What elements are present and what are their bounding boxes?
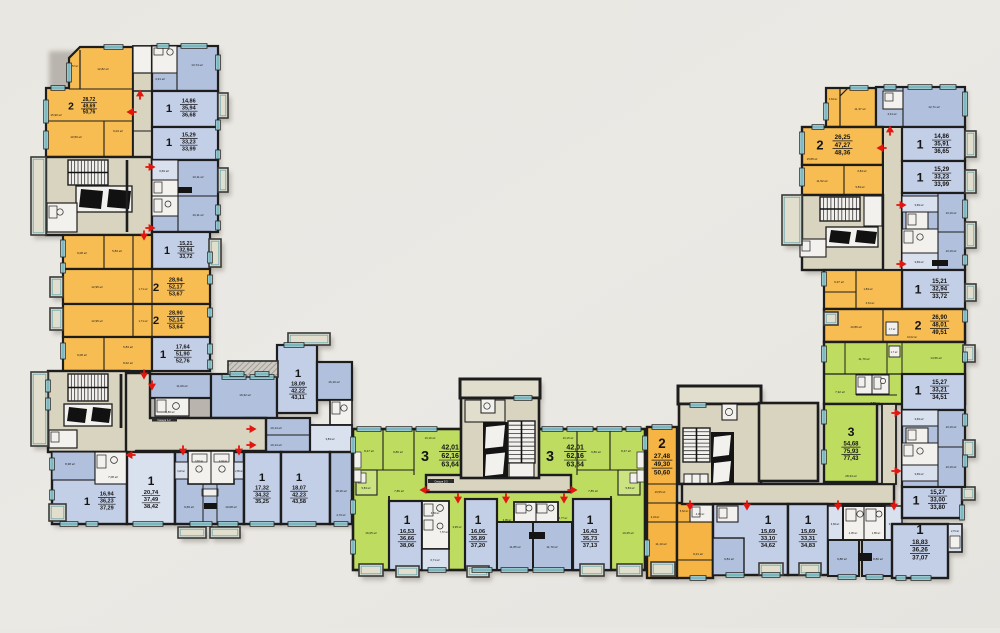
svg-text:10,14 м²: 10,14 м² (270, 426, 281, 430)
svg-text:3,69 м²: 3,69 м² (914, 417, 923, 421)
svg-text:33,00: 33,00 (930, 498, 946, 504)
svg-text:2,70 м²: 2,70 м² (336, 513, 345, 517)
svg-text:28,72: 28,72 (83, 97, 96, 103)
svg-text:16,06: 16,06 (471, 529, 485, 535)
svg-text:51,90: 51,90 (176, 352, 190, 358)
svg-text:27,48: 27,48 (654, 453, 671, 460)
svg-text:3,77 м²: 3,77 м² (559, 516, 568, 520)
svg-text:3,63 м²: 3,63 м² (829, 97, 838, 101)
svg-text:52,76: 52,76 (176, 358, 190, 364)
svg-text:49,30: 49,30 (654, 461, 671, 468)
svg-text:34,62: 34,62 (761, 543, 775, 549)
svg-text:Секция 2-3: Секция 2-3 (434, 479, 448, 483)
svg-text:35,94: 35,94 (182, 106, 197, 112)
svg-text:2: 2 (816, 138, 823, 153)
svg-text:37,13: 37,13 (583, 543, 597, 549)
svg-text:47,27: 47,27 (835, 142, 851, 149)
svg-text:2: 2 (658, 436, 665, 451)
svg-text:10,19 м²: 10,19 м² (946, 249, 957, 253)
svg-text:33,10: 33,10 (761, 536, 775, 542)
svg-text:10,50 м²: 10,50 м² (70, 135, 81, 139)
svg-text:3,69 м²: 3,69 м² (914, 203, 923, 207)
svg-text:3,69 м²: 3,69 м² (914, 472, 923, 476)
svg-text:3,69 м²: 3,69 м² (159, 169, 169, 173)
svg-text:16,94: 16,94 (100, 492, 115, 498)
svg-text:18,09: 18,09 (291, 382, 305, 388)
svg-text:33,31: 33,31 (801, 536, 816, 542)
svg-text:42,01: 42,01 (566, 444, 584, 451)
svg-text:5,83 м²: 5,83 м² (361, 486, 370, 490)
svg-text:7,32 м²: 7,32 м² (835, 390, 845, 394)
svg-text:35,91: 35,91 (934, 142, 950, 148)
svg-text:2: 2 (68, 102, 74, 113)
svg-text:35,25: 35,25 (255, 499, 269, 505)
svg-text:0,71 м²: 0,71 м² (430, 558, 439, 562)
svg-text:5,83 м²: 5,83 м² (112, 249, 122, 253)
svg-text:8,38 м²: 8,38 м² (65, 462, 75, 466)
svg-text:2,43 м²: 2,43 м² (651, 515, 660, 519)
svg-text:63,64: 63,64 (566, 462, 584, 469)
svg-text:33,21: 33,21 (932, 388, 948, 394)
svg-text:1: 1 (166, 103, 172, 115)
svg-text:33,99: 33,99 (934, 182, 950, 188)
svg-text:53,67: 53,67 (169, 291, 183, 297)
svg-text:1: 1 (915, 282, 922, 296)
svg-text:33,72: 33,72 (932, 294, 948, 300)
svg-text:16,15 м²: 16,15 м² (563, 436, 574, 440)
svg-text:1: 1 (166, 137, 172, 149)
svg-text:10,19 м²: 10,19 м² (946, 425, 957, 429)
svg-text:5,86 м²: 5,86 м² (165, 410, 174, 414)
svg-text:5,83 м²: 5,83 м² (625, 486, 634, 490)
svg-text:12,82 м²: 12,82 м² (97, 67, 108, 71)
svg-text:16,16 м²: 16,16 м² (425, 436, 436, 440)
svg-text:15,29: 15,29 (182, 133, 196, 139)
svg-text:15,29: 15,29 (934, 167, 950, 173)
svg-text:33,72: 33,72 (179, 254, 192, 260)
svg-text:1: 1 (259, 472, 265, 484)
svg-text:26,25: 26,25 (835, 134, 851, 141)
svg-text:15,88 м²: 15,88 м² (807, 157, 818, 161)
svg-text:15,21: 15,21 (179, 241, 192, 247)
svg-text:1: 1 (917, 170, 924, 184)
svg-text:77,43: 77,43 (843, 456, 859, 462)
svg-text:11,09 м²: 11,09 м² (176, 384, 187, 388)
svg-text:4,05 м²: 4,05 м² (849, 531, 858, 535)
svg-text:1: 1 (475, 513, 482, 527)
svg-text:38,06: 38,06 (400, 543, 414, 549)
svg-text:7,85 м²: 7,85 м² (588, 489, 598, 493)
svg-text:8,47 м²: 8,47 м² (364, 449, 374, 453)
svg-text:36,23: 36,23 (100, 499, 114, 505)
svg-text:43,11: 43,11 (291, 395, 304, 401)
svg-text:3: 3 (421, 449, 429, 465)
svg-text:33,23: 33,23 (934, 175, 950, 181)
svg-text:2: 2 (153, 315, 159, 327)
svg-text:17,64: 17,64 (176, 345, 191, 351)
svg-text:28,90: 28,90 (169, 311, 183, 317)
svg-text:4,31 м²: 4,31 м² (887, 112, 896, 116)
svg-text:14,56 м²: 14,56 м² (930, 356, 941, 360)
svg-text:1,71 м²: 1,71 м² (138, 287, 147, 291)
svg-text:1: 1 (587, 513, 594, 527)
svg-text:10,25 м²: 10,25 м² (622, 531, 633, 535)
svg-text:9,84 м²: 9,84 м² (724, 557, 734, 561)
svg-text:50,76: 50,76 (83, 110, 96, 116)
svg-text:53,64: 53,64 (169, 324, 184, 330)
svg-text:50,60: 50,60 (654, 469, 671, 476)
svg-text:1: 1 (164, 245, 170, 257)
svg-text:4,31 м²: 4,31 м² (155, 77, 165, 81)
svg-text:2: 2 (153, 282, 159, 294)
svg-text:13,74 м²: 13,74 м² (191, 63, 202, 67)
svg-text:1: 1 (160, 349, 166, 361)
svg-text:75,93: 75,93 (843, 449, 859, 455)
svg-text:15,27: 15,27 (930, 490, 946, 496)
svg-text:8,80 м²: 8,80 м² (873, 557, 883, 561)
svg-text:1: 1 (404, 513, 411, 527)
svg-text:16,55 м²: 16,55 м² (655, 490, 666, 494)
svg-text:3: 3 (848, 425, 855, 439)
svg-text:10,19 м²: 10,19 м² (946, 211, 957, 215)
svg-text:20,74: 20,74 (144, 490, 159, 496)
svg-text:26,90: 26,90 (932, 315, 948, 321)
svg-text:33,80: 33,80 (930, 505, 946, 511)
svg-text:62,16: 62,16 (566, 453, 584, 460)
svg-text:15,69: 15,69 (801, 529, 815, 535)
svg-text:37,49: 37,49 (144, 497, 158, 503)
svg-text:10,14 м²: 10,14 м² (270, 443, 281, 447)
svg-text:5,62 м²: 5,62 м² (680, 509, 689, 513)
svg-text:Секция 1-2: Секция 1-2 (157, 418, 171, 422)
svg-text:4,05 м²: 4,05 м² (696, 512, 705, 516)
svg-text:62,16: 62,16 (441, 453, 459, 460)
svg-text:1: 1 (84, 496, 90, 508)
svg-text:11,85 м²: 11,85 м² (509, 545, 520, 549)
svg-text:43,58: 43,58 (292, 499, 306, 505)
svg-text:14,86: 14,86 (182, 99, 196, 105)
svg-text:1,71 м²: 1,71 м² (138, 319, 147, 323)
svg-text:3,83 м²: 3,83 м² (325, 437, 334, 441)
svg-text:11,70 м²: 11,70 м² (858, 357, 869, 361)
svg-text:11,10 м²: 11,10 м² (655, 542, 666, 546)
svg-text:63,64: 63,64 (441, 462, 459, 469)
svg-text:0,61 м²: 0,61 м² (866, 301, 875, 305)
svg-text:34,83: 34,83 (801, 543, 815, 549)
svg-text:52,17: 52,17 (169, 285, 183, 291)
svg-text:4,04 м²: 4,04 м² (219, 460, 227, 463)
svg-text:1,7 м²: 1,7 м² (891, 351, 898, 354)
svg-text:1: 1 (913, 493, 920, 507)
svg-text:9,08 м²: 9,08 м² (77, 353, 87, 357)
svg-text:12,95 м²: 12,95 м² (91, 285, 102, 289)
svg-text:28,94: 28,94 (169, 278, 184, 284)
svg-text:7,86 м²: 7,86 м² (394, 489, 404, 493)
svg-text:1: 1 (917, 137, 924, 151)
svg-text:11,52 м²: 11,52 м² (816, 179, 827, 183)
svg-text:16,02 м²: 16,02 м² (907, 335, 917, 339)
svg-text:12,71 м²: 12,71 м² (928, 105, 939, 109)
svg-text:6,04 м²: 6,04 м² (113, 129, 123, 133)
svg-text:37,20: 37,20 (471, 543, 485, 549)
svg-text:3,22 м²: 3,22 м² (177, 470, 185, 473)
svg-text:18,83: 18,83 (912, 539, 928, 546)
svg-text:1,83 м²: 1,83 м² (863, 287, 872, 291)
svg-text:3,83 м²: 3,83 м² (431, 511, 440, 515)
svg-text:42,23: 42,23 (292, 492, 306, 498)
svg-text:36,26: 36,26 (912, 547, 928, 554)
svg-text:7,57 м²: 7,57 м² (440, 530, 449, 534)
svg-text:11,70 м²: 11,70 м² (546, 545, 557, 549)
svg-text:10,08 м²: 10,08 м² (225, 505, 236, 509)
svg-text:49,51: 49,51 (932, 330, 948, 336)
svg-text:42,01: 42,01 (441, 444, 459, 451)
svg-text:8,47 м²: 8,47 м² (621, 449, 631, 453)
svg-text:52,14: 52,14 (169, 318, 184, 324)
svg-text:14,86: 14,86 (934, 134, 950, 140)
svg-text:1: 1 (296, 472, 302, 484)
svg-text:28,34 м²: 28,34 м² (845, 474, 856, 478)
svg-text:16,05 м²: 16,05 м² (365, 531, 376, 535)
svg-text:32,94: 32,94 (932, 287, 948, 293)
svg-text:17,32: 17,32 (255, 486, 269, 492)
svg-text:10,11 м²: 10,11 м² (192, 213, 203, 217)
svg-text:15,27: 15,27 (932, 380, 948, 386)
svg-text:36,66: 36,66 (400, 536, 414, 542)
svg-text:5,83 м²: 5,83 м² (123, 345, 133, 349)
svg-text:48,36: 48,36 (835, 150, 851, 157)
svg-text:18,07: 18,07 (292, 486, 306, 492)
svg-text:3,69 м²: 3,69 м² (914, 260, 923, 264)
svg-text:33,99: 33,99 (182, 146, 196, 152)
svg-text:16,43: 16,43 (583, 529, 597, 535)
svg-text:9,21 м²: 9,21 м² (693, 552, 703, 556)
svg-text:2,89 м²: 2,89 м² (235, 470, 243, 473)
svg-text:1: 1 (915, 383, 922, 397)
svg-text:42,22: 42,22 (291, 388, 305, 394)
svg-text:6,37 м²: 6,37 м² (834, 280, 844, 284)
svg-text:1: 1 (295, 368, 301, 380)
svg-text:16,53: 16,53 (400, 529, 414, 535)
svg-text:12,95 м²: 12,95 м² (91, 319, 102, 323)
svg-text:1,7 м²: 1,7 м² (889, 328, 896, 331)
svg-text:35,73: 35,73 (583, 536, 597, 542)
svg-text:38,42: 38,42 (144, 504, 158, 510)
svg-text:9,69 м²: 9,69 м² (184, 505, 194, 509)
svg-text:10,11 м²: 10,11 м² (192, 175, 203, 179)
svg-text:33,23: 33,23 (182, 140, 196, 146)
svg-text:19,32 м²: 19,32 м² (239, 393, 250, 397)
svg-text:8,62 м²: 8,62 м² (123, 361, 133, 365)
svg-text:37,29: 37,29 (100, 505, 114, 511)
svg-text:37,07: 37,07 (912, 554, 928, 561)
svg-text:9,88 м²: 9,88 м² (837, 557, 847, 561)
svg-text:9,80 м²: 9,80 м² (393, 450, 403, 454)
svg-text:2: 2 (915, 318, 922, 332)
svg-text:5,83 м²: 5,83 м² (855, 185, 864, 189)
svg-text:1: 1 (916, 522, 923, 537)
svg-text:18,16 м²: 18,16 м² (335, 489, 346, 493)
svg-text:11,37 м²: 11,37 м² (854, 107, 865, 111)
svg-text:16,16 м²: 16,16 м² (328, 380, 339, 384)
svg-text:32,94: 32,94 (179, 247, 192, 253)
svg-text:6,84 м²: 6,84 м² (857, 169, 866, 173)
svg-text:3: 3 (546, 449, 554, 465)
svg-text:10,19 м²: 10,19 м² (946, 465, 957, 469)
svg-text:15,69: 15,69 (761, 529, 775, 535)
svg-text:9,80 м²: 9,80 м² (591, 450, 601, 454)
svg-text:34,51: 34,51 (932, 395, 948, 401)
svg-text:7,08 м²: 7,08 м² (108, 475, 118, 479)
svg-text:49,69: 49,69 (83, 103, 96, 109)
svg-text:48,01: 48,01 (932, 323, 948, 329)
svg-text:34,32: 34,32 (255, 492, 269, 498)
svg-text:36,68: 36,68 (182, 112, 196, 118)
svg-text:10,86 м²: 10,86 м² (850, 325, 861, 329)
svg-text:15,21: 15,21 (932, 279, 948, 285)
svg-text:3,69 м²: 3,69 м² (831, 522, 840, 526)
svg-text:2,70 м²: 2,70 м² (951, 530, 959, 533)
svg-text:9,08 м²: 9,08 м² (77, 251, 87, 255)
svg-text:36,65: 36,65 (934, 149, 950, 155)
svg-text:3,83 м²: 3,83 м² (195, 460, 203, 463)
svg-text:1: 1 (805, 513, 812, 527)
svg-text:35,89: 35,89 (471, 536, 485, 542)
svg-text:54,68: 54,68 (843, 441, 859, 447)
svg-text:1,85 м²: 1,85 м² (872, 531, 881, 535)
svg-text:15,90 м²: 15,90 м² (50, 113, 61, 117)
svg-text:1: 1 (148, 474, 155, 488)
svg-text:3,95 м²: 3,95 м² (452, 525, 461, 529)
svg-text:1: 1 (765, 513, 772, 527)
